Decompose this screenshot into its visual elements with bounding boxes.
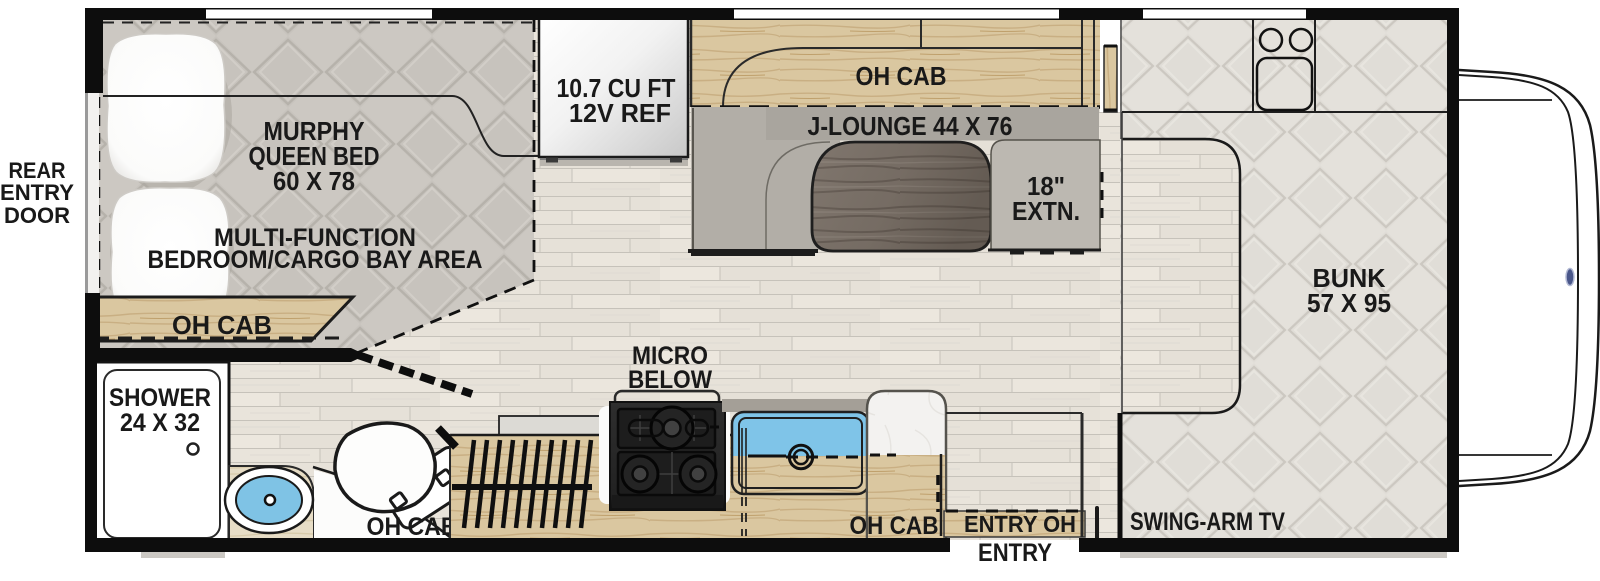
svg-text:DOOR: DOOR	[4, 203, 70, 228]
svg-text:SHOWER: SHOWER	[109, 384, 211, 412]
svg-text:ENTRY: ENTRY	[0, 180, 74, 205]
svg-text:OH CAB: OH CAB	[172, 310, 272, 340]
svg-text:OH CAB: OH CAB	[367, 513, 458, 541]
svg-text:BELOW: BELOW	[628, 366, 712, 394]
svg-text:ENTRY OH: ENTRY OH	[964, 511, 1076, 537]
svg-text:24 X 32: 24 X 32	[120, 409, 200, 437]
svg-text:EXTN.: EXTN.	[1012, 196, 1080, 226]
svg-text:12V REF: 12V REF	[569, 98, 671, 128]
svg-text:ENTRY: ENTRY	[978, 539, 1052, 567]
svg-text:OH CAB: OH CAB	[856, 61, 947, 91]
svg-text:J-LOUNGE 44 X 76: J-LOUNGE 44 X 76	[808, 111, 1013, 141]
svg-text:BEDROOM/CARGO BAY AREA: BEDROOM/CARGO BAY AREA	[148, 246, 483, 274]
svg-text:SWING-ARM TV: SWING-ARM TV	[1130, 508, 1285, 536]
svg-text:OH CAB: OH CAB	[850, 512, 939, 540]
svg-text:57 X 95: 57 X 95	[1307, 288, 1391, 318]
svg-text:60 X 78: 60 X 78	[273, 166, 355, 196]
